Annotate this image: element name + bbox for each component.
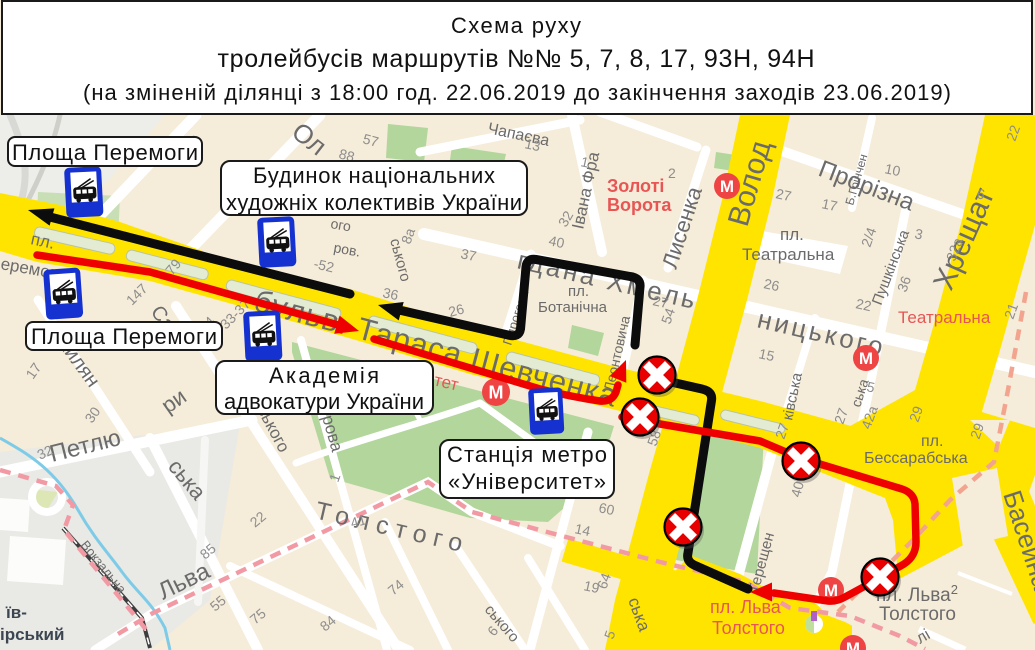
svg-text:Толстого: Толстого (879, 604, 956, 625)
svg-text:М: М (846, 639, 860, 650)
svg-text:пл.: пл. (921, 433, 943, 450)
svg-text:Ботанічна: Ботанічна (538, 299, 608, 316)
svg-text:тролейбусів маршрутів №№ 5, 7,: тролейбусів маршрутів №№ 5, 7, 8, 17, 93… (218, 45, 815, 73)
svg-text:Станція метро: Станція метро (447, 442, 607, 467)
svg-text:М: М (720, 177, 734, 196)
svg-text:«Університет»: «Університет» (448, 469, 606, 494)
svg-text:пл.: пл. (568, 283, 589, 300)
svg-text:Театральна: Театральна (742, 245, 835, 264)
svg-text:їв-: їв- (5, 603, 27, 622)
svg-text:Толстого: Толстого (712, 618, 785, 638)
svg-text:Театральна: Театральна (898, 308, 991, 327)
svg-text:Площа Перемоги: Площа Перемоги (12, 140, 198, 165)
svg-text:2: 2 (668, 165, 676, 181)
svg-text:М: М (859, 349, 873, 368)
svg-text:Академія: Академія (269, 363, 379, 388)
svg-text:Ворота: Ворота (607, 195, 672, 215)
svg-text:М: М (489, 383, 504, 403)
svg-text:пл.: пл. (780, 225, 804, 244)
svg-text:Площа Перемоги: Площа Перемоги (31, 324, 217, 349)
svg-text:Бессарабська: Бессарабська (864, 450, 968, 467)
svg-text:ірський: ірський (0, 625, 64, 644)
svg-text:(на зміненій ділянці з 18:00 г: (на зміненій ділянці з 18:00 год. 22.06.… (83, 80, 951, 105)
svg-text:Будинок національних: Будинок національних (253, 163, 495, 188)
svg-text:художніх колективів України: художніх колективів України (226, 190, 522, 215)
svg-text:Схема руху: Схема руху (451, 13, 581, 38)
svg-text:адвокатури України: адвокатури України (224, 389, 424, 414)
svg-text:Золоті: Золоті (607, 176, 664, 196)
